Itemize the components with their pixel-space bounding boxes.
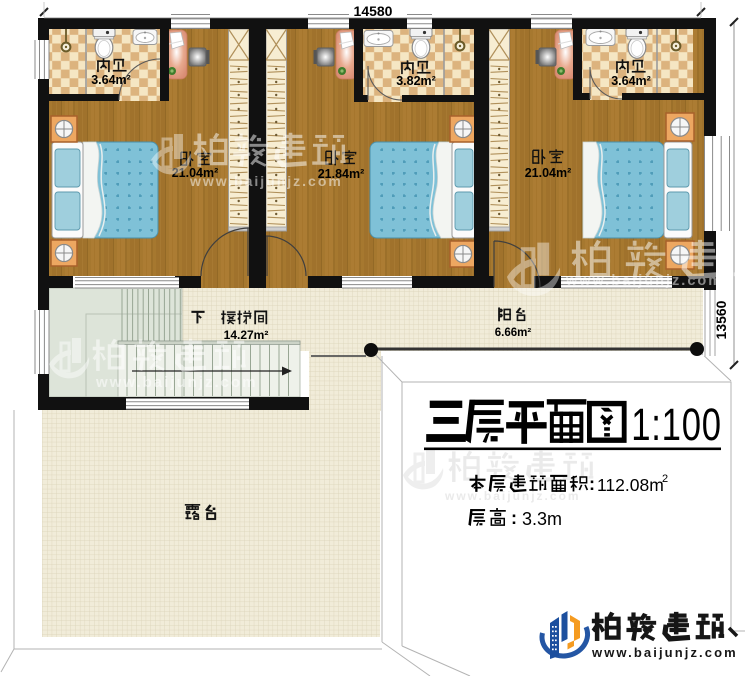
svg-text:3.64m²: 3.64m² [611, 74, 651, 88]
svg-text:www.baijunjz.com: www.baijunjz.com [565, 273, 723, 289]
svg-text:13560: 13560 [713, 300, 729, 339]
svg-text:3.82m²: 3.82m² [396, 74, 436, 88]
svg-text:14.27m²: 14.27m² [224, 328, 269, 342]
svg-text:21.04m²: 21.04m² [525, 166, 572, 180]
svg-text:3.3m: 3.3m [522, 509, 562, 529]
svg-text::: : [589, 474, 595, 494]
svg-text::: : [511, 508, 517, 528]
svg-text:www.baijunjz.com: www.baijunjz.com [95, 374, 257, 391]
svg-text:www.baijunjz.com: www.baijunjz.com [189, 173, 343, 189]
svg-text:14580: 14580 [354, 3, 393, 19]
svg-text:2: 2 [662, 473, 668, 485]
svg-text:112.08m: 112.08m [597, 475, 664, 495]
svg-text:6.66m²: 6.66m² [495, 327, 532, 339]
svg-text:www.baijunjz.com: www.baijunjz.com [591, 645, 738, 660]
svg-text:1:100: 1:100 [631, 400, 722, 450]
svg-text:3.64m²: 3.64m² [91, 73, 131, 87]
